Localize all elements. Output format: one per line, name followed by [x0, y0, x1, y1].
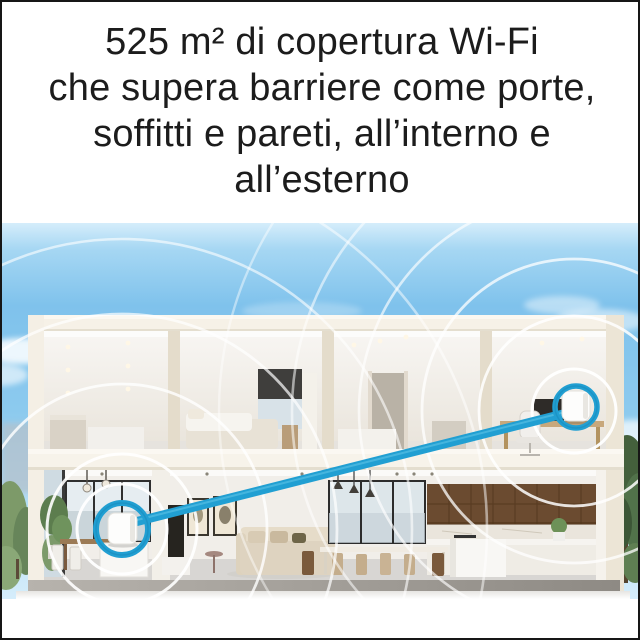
counter-plant [551, 518, 567, 541]
bed-foot [88, 427, 144, 449]
headline-line-3: soffitti e pareti, all’interno e [2, 111, 640, 157]
headline-line-1: 525 m² di copertura Wi-Fi [2, 19, 640, 65]
house-cross-section [16, 315, 630, 599]
product-marketing-image: 525 m² di copertura Wi-Fi che supera bar… [0, 0, 640, 640]
foundation [16, 591, 630, 599]
upper-floor [44, 331, 606, 455]
door [302, 373, 317, 449]
house-coverage-illustration [2, 223, 640, 599]
cooktop [454, 535, 476, 538]
low-bed [338, 429, 396, 449]
headline-line-4: all’esterno [2, 157, 640, 203]
headline-line-2: che supera barriere come porte, [2, 65, 640, 111]
floor-base-slab [28, 580, 620, 591]
nightstand [282, 425, 298, 449]
headline: 525 m² di copertura Wi-Fi che supera bar… [2, 2, 640, 203]
island [450, 539, 506, 577]
dresser [50, 415, 86, 449]
kitchen-pillar [596, 470, 606, 580]
